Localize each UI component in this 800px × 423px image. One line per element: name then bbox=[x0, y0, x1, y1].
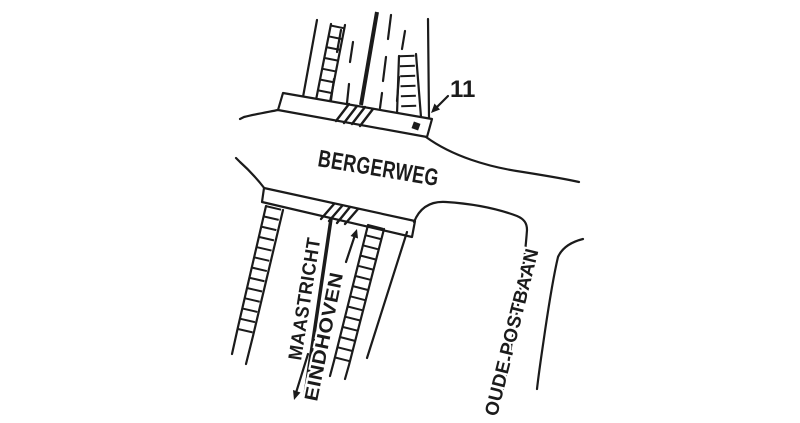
south-road-right-path-hatching bbox=[341, 226, 376, 363]
north-sidewalk-band bbox=[278, 93, 432, 137]
bergerweg-east-north-edge bbox=[426, 137, 579, 182]
marker-callout: 11 bbox=[431, 76, 475, 113]
marker-number-label: 11 bbox=[450, 76, 475, 103]
eindhoven-direction-arrow bbox=[346, 229, 358, 262]
sideroad-right-edge-and-bergerweg-south-east-edge bbox=[537, 239, 583, 389]
map-sketch-sheet: 11 BERGERWEG MAASTRICHT EINDHOVEN OUDE P… bbox=[0, 0, 800, 423]
oude-postbaan-label: OUDE POSTBAAN bbox=[481, 246, 543, 418]
south-road-right-outer-edge bbox=[367, 232, 407, 358]
south-road-right-path-edge-b bbox=[345, 229, 384, 379]
north-road-right-path-edge-a bbox=[397, 56, 399, 114]
north-road-right-outer-edge bbox=[428, 19, 429, 118]
south-road-left-path-edge-b bbox=[246, 210, 283, 364]
maastricht-arrowhead bbox=[293, 390, 301, 400]
north-road-left-path-edge-a bbox=[316, 24, 331, 100]
bergerweg-west-edges bbox=[236, 110, 278, 189]
north-road-centerline bbox=[361, 12, 377, 105]
north-road-left-path-hatching bbox=[323, 26, 338, 101]
intersection-sketch: 11 BERGERWEG MAASTRICHT EINDHOVEN OUDE P… bbox=[0, 0, 800, 423]
bergerweg-west-north-edge bbox=[240, 110, 278, 119]
eindhoven-arrowhead bbox=[351, 229, 359, 239]
bergerweg-west-south-edge bbox=[236, 158, 265, 189]
bergerweg-label: BERGERWEG bbox=[316, 145, 441, 192]
north-road-right-path-edge-b bbox=[416, 54, 421, 117]
south-sidewalk-band bbox=[262, 188, 415, 237]
north-road-left-outer-edge bbox=[303, 20, 317, 97]
north-road-lane-dashes-right bbox=[380, 15, 405, 108]
north-road-right-path-hatching bbox=[407, 55, 409, 115]
